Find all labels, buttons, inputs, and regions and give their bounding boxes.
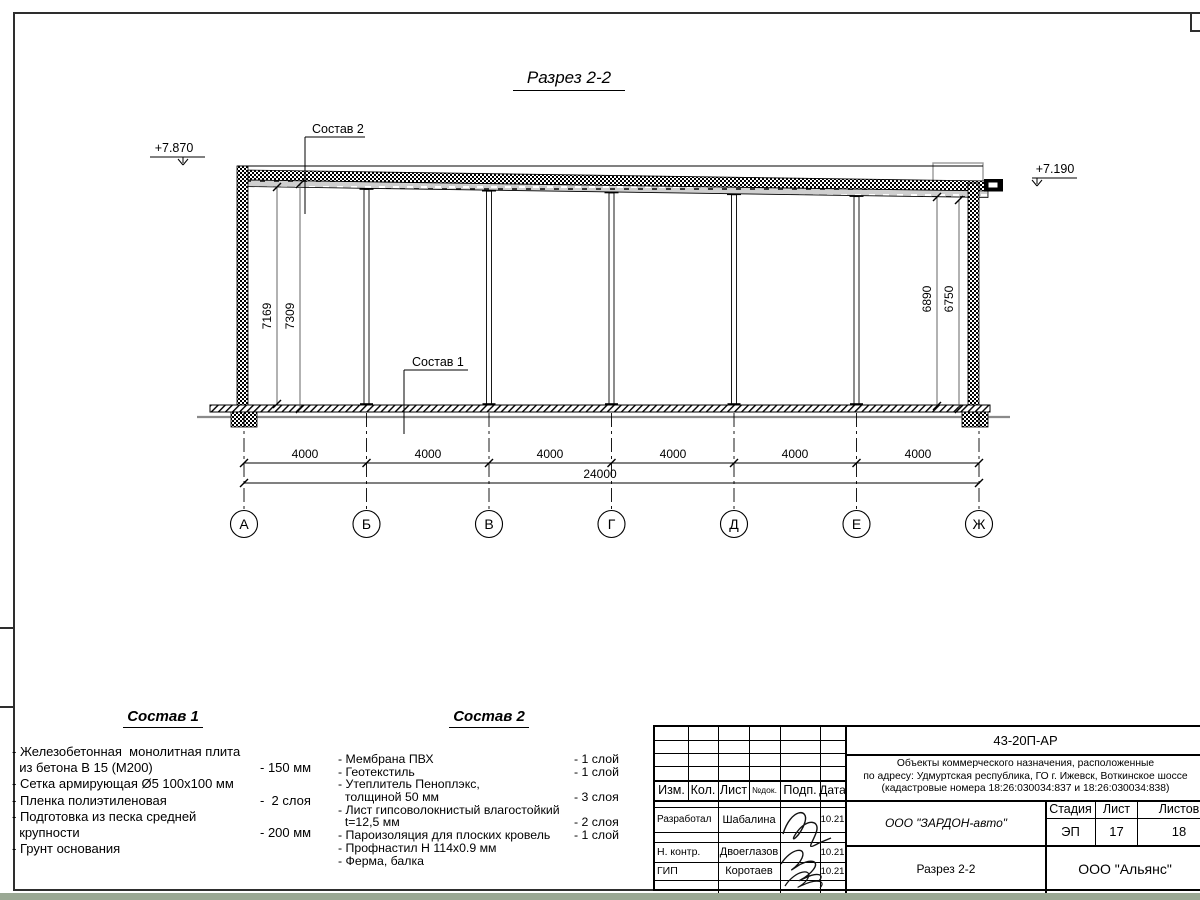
comp-line: - Лист гипсоволокнистый влагостойкий xyxy=(338,803,640,816)
grid-line xyxy=(655,740,845,741)
address-line: Объекты коммерческого назначения, распол… xyxy=(897,758,1154,771)
signature xyxy=(781,850,821,881)
elevation-mark-left: +7.870 xyxy=(150,141,205,165)
column xyxy=(605,193,619,405)
span-dim: 4000 xyxy=(415,447,442,461)
leader-floor: Состав 1 xyxy=(404,355,468,434)
sheet-value: 17 xyxy=(1096,818,1137,845)
comp-line: - Профнастил Н 114x0.9 мм xyxy=(338,841,640,854)
floor-slab xyxy=(210,405,990,412)
span-dim: 4000 xyxy=(292,447,319,461)
svg-text:+7.190: +7.190 xyxy=(1036,162,1075,176)
col-header-izm: Изм. xyxy=(655,780,688,800)
col-header-ndok: №док. xyxy=(749,780,780,800)
column xyxy=(727,194,741,404)
sheets-label: Листов xyxy=(1138,800,1200,818)
axis-label: Е xyxy=(852,516,861,532)
margin-tick xyxy=(0,627,13,629)
doc-name: Разрез 2-2 xyxy=(847,845,1045,893)
address-line: (кадастровые номера 18:26:030034:837 и 1… xyxy=(882,783,1170,796)
axis-label: Д xyxy=(729,516,739,532)
doc-code: 43-20П-АР xyxy=(847,727,1200,754)
grid-line xyxy=(655,766,845,767)
comp-line: - Мембрана ПВХ- 1 слой xyxy=(338,752,640,765)
dim-right-outer: 6750 xyxy=(942,285,956,312)
stage-value: ЭП xyxy=(1046,818,1095,845)
col-header-data: Дата xyxy=(820,780,845,800)
comp-line: - Геотекстиль- 1 слой xyxy=(338,765,640,778)
grid-line xyxy=(655,753,845,754)
axis-label: А xyxy=(239,516,249,532)
footing-right xyxy=(962,412,988,427)
column xyxy=(482,191,496,404)
columns xyxy=(360,189,864,404)
comp-line: - Грунт основания xyxy=(12,841,314,857)
comp-line: - Железобетонная монолитная плита xyxy=(12,744,314,760)
column xyxy=(360,189,374,404)
span-dim: 4000 xyxy=(782,447,809,461)
axis-label: Б xyxy=(362,516,371,532)
address-line: по адресу: Удмуртская республика, ГО г. … xyxy=(863,771,1187,784)
firm: ООО "Альянс" xyxy=(1046,845,1200,893)
axis-label: Ж xyxy=(973,516,986,532)
name-developed: Шабалина xyxy=(718,807,780,832)
span-dim: 4000 xyxy=(660,447,687,461)
comp-line: t=12,5 мм- 2 слоя xyxy=(338,815,640,828)
comp-line: - Пароизоляция для плоских кровель- 1 сл… xyxy=(338,828,640,841)
axis-label: В xyxy=(484,516,493,532)
dim-left-outer: 7309 xyxy=(283,302,297,329)
left-wall xyxy=(237,166,248,412)
axis-label: Г xyxy=(608,516,616,532)
col-header-list: Лист xyxy=(718,780,749,800)
axis-lines xyxy=(244,413,979,509)
drawing-sheet: { "colors": {"ground_line":"#8a8a8a","bo… xyxy=(0,0,1200,900)
comp-line: крупности- 200 мм xyxy=(12,825,314,841)
stage-label: Стадия xyxy=(1046,800,1095,818)
dimension-ticks xyxy=(273,180,963,413)
bottom-strip xyxy=(0,893,1200,900)
svg-text:+7.870: +7.870 xyxy=(155,141,194,155)
dim-left-inner: 7169 xyxy=(260,302,274,329)
composition-2: Состав 2 - Мембрана ПВХ- 1 слой - Геотек… xyxy=(338,708,640,866)
signatures xyxy=(775,800,845,893)
name-gip: Коротаев xyxy=(718,862,780,880)
role-developed: Разработал xyxy=(657,807,718,832)
composition-1: Состав 1 - Железобетонная монолитная пли… xyxy=(12,708,314,857)
col-header-podp: Подп. xyxy=(780,780,820,800)
role-ncontrol: Н. контр. xyxy=(657,842,718,862)
total-dim: 24000 xyxy=(583,467,617,481)
section-drawing: 7169 7309 6890 6750 4000 4000 4000 4000 … xyxy=(0,0,1200,580)
comp-line: - Пленка полиэтиленовая- 2 слоя xyxy=(12,793,314,809)
project-address: Объекты коммерческого назначения, распол… xyxy=(847,754,1200,800)
sheet-label: Лист xyxy=(1096,800,1137,818)
span-dim: 4000 xyxy=(905,447,932,461)
comp-line: из бетона В 15 (М200)- 150 мм xyxy=(12,760,314,776)
elevation-mark-right: +7.190 xyxy=(1032,162,1077,186)
name-ncontrol: Двоеглазов xyxy=(718,842,780,862)
title-block: Изм. Кол. Лист №док. Подп. Дата Разработ… xyxy=(653,725,1200,891)
svg-text:Состав 2: Состав 2 xyxy=(312,122,364,136)
comp-line: - Сетка армирующая Ø5 100x100 мм xyxy=(12,776,314,792)
column xyxy=(850,196,864,404)
comp-line: - Подготовка из песка средней xyxy=(12,809,314,825)
col-header-kol: Кол. xyxy=(688,780,718,800)
right-wall xyxy=(968,183,979,412)
sheets-value: 18 xyxy=(1138,818,1200,845)
company: ООО "ЗАРДОН-авто" xyxy=(847,800,1045,845)
composition-2-title: Состав 2 xyxy=(338,708,640,728)
svg-text:Состав 1: Состав 1 xyxy=(412,355,464,369)
composition-1-title: Состав 1 xyxy=(12,708,314,728)
leader-roof: Состав 2 xyxy=(305,122,365,214)
comp-line: - Утеплитель Пеноплэкс, xyxy=(338,777,640,790)
roof-assembly xyxy=(243,170,1003,198)
signature xyxy=(783,813,831,847)
span-dim: 4000 xyxy=(537,447,564,461)
comp-line: толщиной 50 мм- 3 слоя xyxy=(338,790,640,803)
dim-right-inner: 6890 xyxy=(920,285,934,312)
role-gip: ГИП xyxy=(657,862,718,880)
comp-line: - Ферма, балка xyxy=(338,854,640,867)
